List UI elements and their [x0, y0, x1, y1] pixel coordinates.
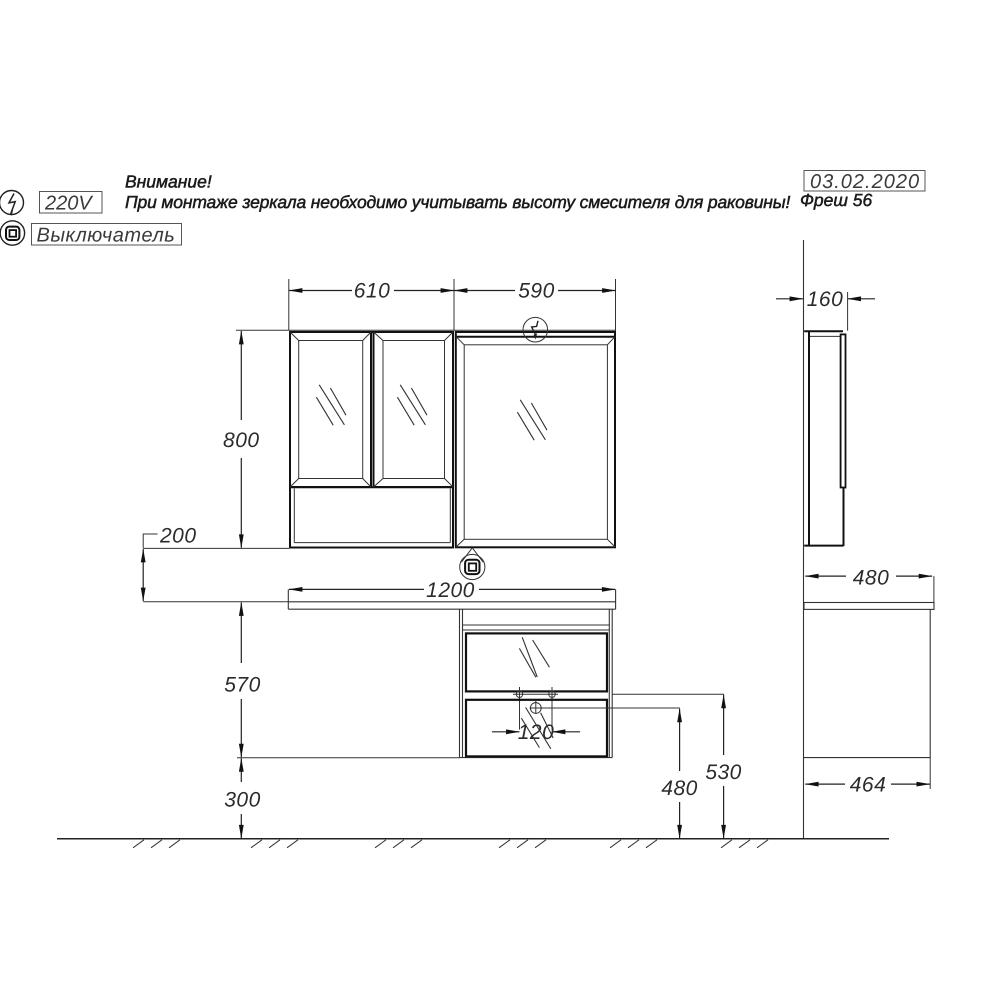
svg-text:160: 160 — [807, 288, 844, 311]
svg-text:570: 570 — [224, 674, 261, 697]
svg-text:Фреш 56: Фреш 56 — [800, 190, 872, 210]
svg-text:590: 590 — [518, 280, 555, 303]
svg-text:220V: 220V — [44, 193, 93, 215]
svg-text:Выключатель: Выключатель — [37, 225, 176, 247]
svg-text:При монтаже зеркала необходимо: При монтаже зеркала необходимо учитывать… — [125, 192, 791, 212]
svg-text:200: 200 — [159, 525, 197, 548]
svg-text:Внимание!: Внимание! — [125, 172, 212, 192]
svg-text:480: 480 — [853, 567, 890, 590]
svg-text:800: 800 — [223, 429, 260, 452]
svg-text:120: 120 — [518, 721, 555, 744]
svg-text:480: 480 — [661, 777, 698, 800]
svg-text:03.02.2020: 03.02.2020 — [810, 171, 920, 193]
svg-text:530: 530 — [705, 761, 742, 784]
svg-text:1200: 1200 — [426, 579, 475, 602]
svg-text:464: 464 — [850, 774, 887, 797]
svg-text:610: 610 — [354, 280, 391, 303]
svg-text:300: 300 — [224, 789, 261, 812]
